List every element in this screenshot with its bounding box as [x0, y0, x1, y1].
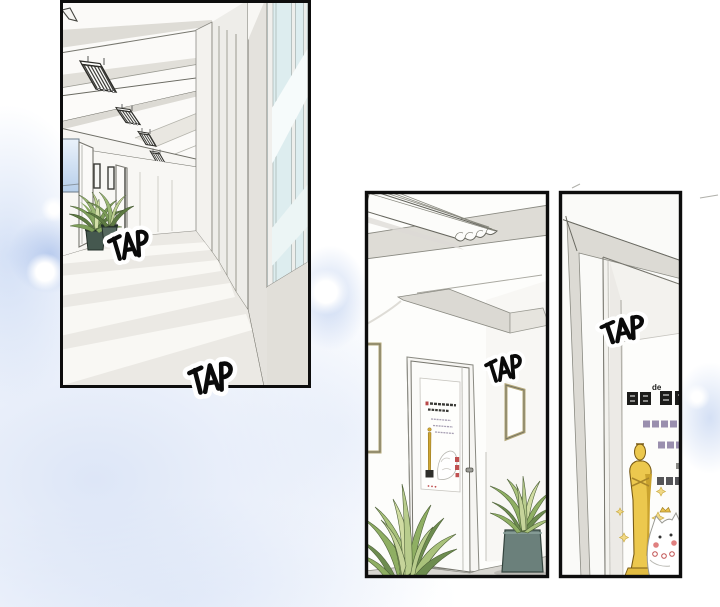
- svg-text:de: de: [652, 383, 662, 392]
